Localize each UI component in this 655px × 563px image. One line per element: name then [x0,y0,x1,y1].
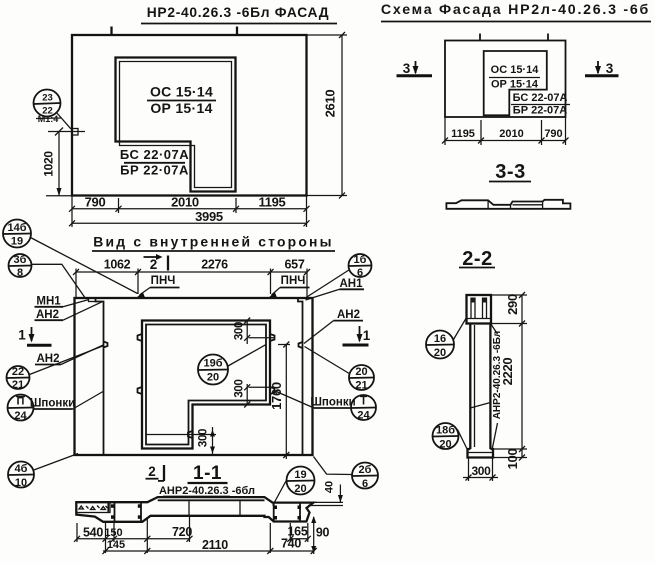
svg-text:540: 540 [83,526,103,540]
svg-text:20: 20 [434,347,446,359]
svg-text:14б: 14б [7,222,26,234]
svg-text:ОС 15·14: ОС 15·14 [150,84,213,100]
svg-text:Шпонки: Шпонки [310,397,355,409]
svg-text:АНР2-40.26.3 -6бл: АНР2-40.26.3 -6бл [159,485,255,497]
svg-text:АН1: АН1 [339,278,363,290]
svg-text:Схема Фасада НР2л-40.26.3 -6б: Схема Фасада НР2л-40.26.3 -6б [381,2,650,18]
svg-text:БС 22·07А: БС 22·07А [120,147,189,162]
svg-text:1020: 1020 [42,151,56,177]
svg-text:3-3: 3-3 [495,161,525,183]
svg-text:20: 20 [439,439,451,451]
svg-text:20: 20 [294,483,306,495]
svg-text:1195: 1195 [451,128,475,140]
svg-text:657: 657 [285,258,305,272]
svg-text:100: 100 [505,449,520,470]
svg-text:ПНЧ: ПНЧ [151,275,176,287]
svg-text:720: 720 [172,525,192,539]
svg-text:740: 740 [281,537,301,551]
svg-text:40: 40 [324,481,336,493]
svg-text:300: 300 [198,429,210,447]
svg-text:ПНЧ: ПНЧ [281,275,306,287]
svg-text:21: 21 [12,379,24,391]
svg-text:19б: 19б [203,358,222,370]
svg-text:1195: 1195 [258,195,285,210]
svg-text:ОР 15·14: ОР 15·14 [491,79,539,91]
svg-text:2б: 2б [359,464,372,476]
svg-text:90: 90 [316,526,330,540]
svg-text:I: I [362,396,365,408]
svg-text:790: 790 [85,195,106,210]
svg-text:П: П [17,396,25,408]
svg-text:6: 6 [362,478,368,490]
svg-text:300: 300 [471,464,491,478]
svg-text:1-1: 1-1 [193,463,222,484]
svg-text:ОР 15·14: ОР 15·14 [150,100,212,116]
svg-text:БР 22·07А: БР 22·07А [120,163,189,178]
svg-text:2010: 2010 [171,195,199,210]
svg-text:Вид с внутренней стороны: Вид с внутренней стороны [93,234,333,250]
svg-text:19: 19 [294,469,306,481]
svg-text:1б: 1б [354,254,367,266]
svg-text:АН2: АН2 [337,309,360,321]
svg-text:2276: 2276 [201,258,228,272]
svg-text:290: 290 [505,294,520,315]
svg-text:3: 3 [403,61,411,76]
svg-text:ОС 15·14: ОС 15·14 [491,64,540,76]
svg-text:8: 8 [17,267,23,279]
svg-text:1062: 1062 [104,258,131,272]
svg-text:2: 2 [148,464,156,479]
svg-text:24: 24 [14,410,27,422]
svg-text:19: 19 [11,236,23,248]
svg-text:4б: 4б [15,463,28,475]
svg-text:Шпонки: Шпонки [30,398,75,410]
svg-text:2010: 2010 [499,128,523,140]
svg-text:24: 24 [357,410,370,422]
svg-text:НР2-40.26.3 -6Бл ФАСАД: НР2-40.26.3 -6Бл ФАСАД [147,5,329,20]
svg-text:300: 300 [234,379,246,397]
svg-text:БР 22-07А: БР 22-07А [513,105,567,117]
svg-text:БС 22-07А: БС 22-07А [513,92,568,104]
svg-text:3995: 3995 [195,209,223,224]
svg-text:300: 300 [234,322,246,340]
svg-text:23: 23 [42,93,53,104]
svg-text:18б: 18б [436,425,455,437]
svg-text:1: 1 [363,328,371,343]
svg-text:2220: 2220 [500,358,515,386]
svg-text:10: 10 [15,477,27,489]
svg-text:3б: 3б [14,254,27,266]
svg-text:2110: 2110 [202,538,228,552]
svg-text:21: 21 [355,380,367,392]
svg-text:790: 790 [544,128,562,140]
svg-text:3: 3 [606,61,614,76]
svg-text:20: 20 [355,366,367,378]
svg-text:АН2: АН2 [36,309,59,321]
svg-text:1: 1 [18,328,26,343]
svg-text:16: 16 [434,333,446,345]
svg-text:МН1: МН1 [36,296,61,308]
svg-text:145: 145 [107,539,125,551]
svg-text:150: 150 [104,527,122,539]
svg-text:20: 20 [207,372,219,384]
svg-text:АН2: АН2 [36,353,59,365]
svg-text:1760: 1760 [269,382,284,410]
svg-text:2610: 2610 [323,90,338,118]
svg-text:22: 22 [12,366,24,378]
